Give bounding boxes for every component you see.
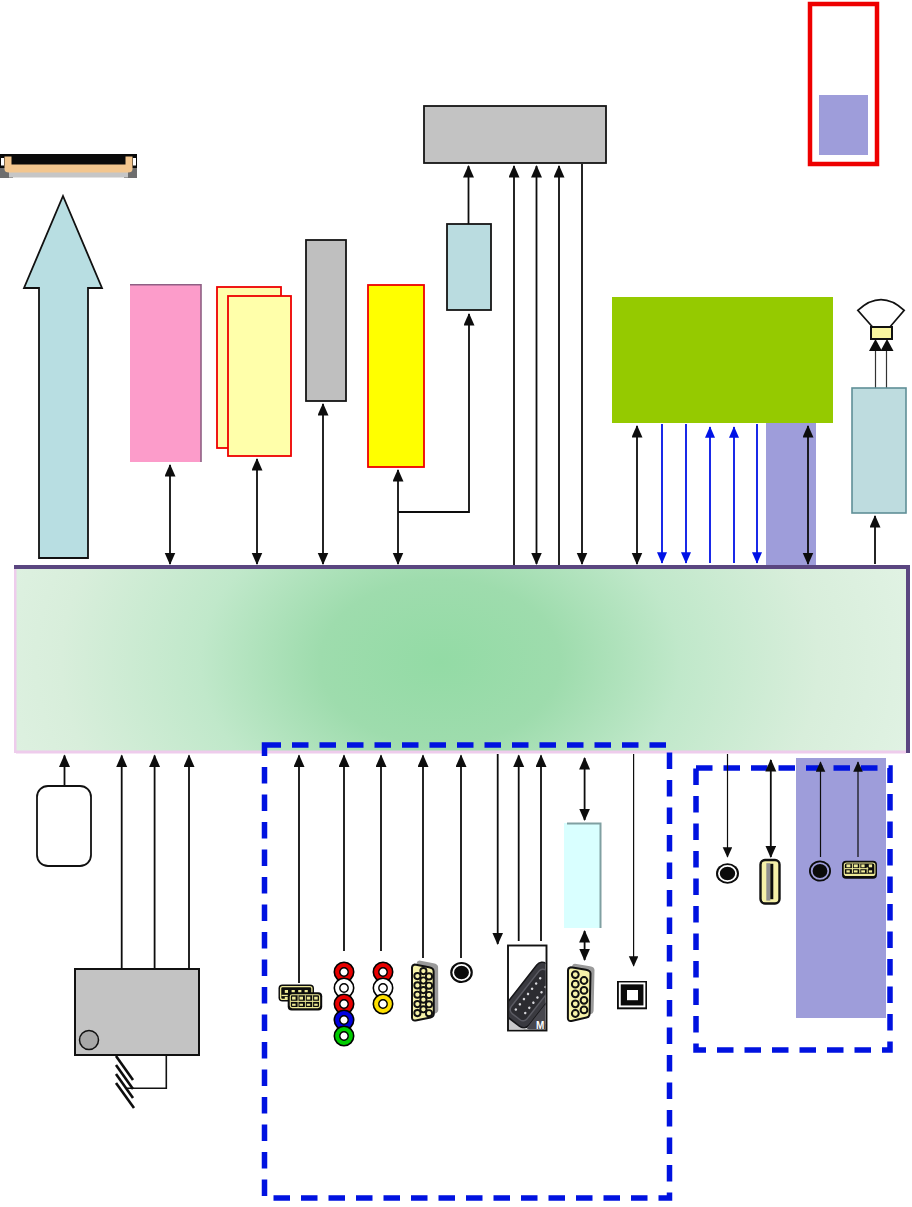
svg-text:M: M <box>536 1020 544 1031</box>
